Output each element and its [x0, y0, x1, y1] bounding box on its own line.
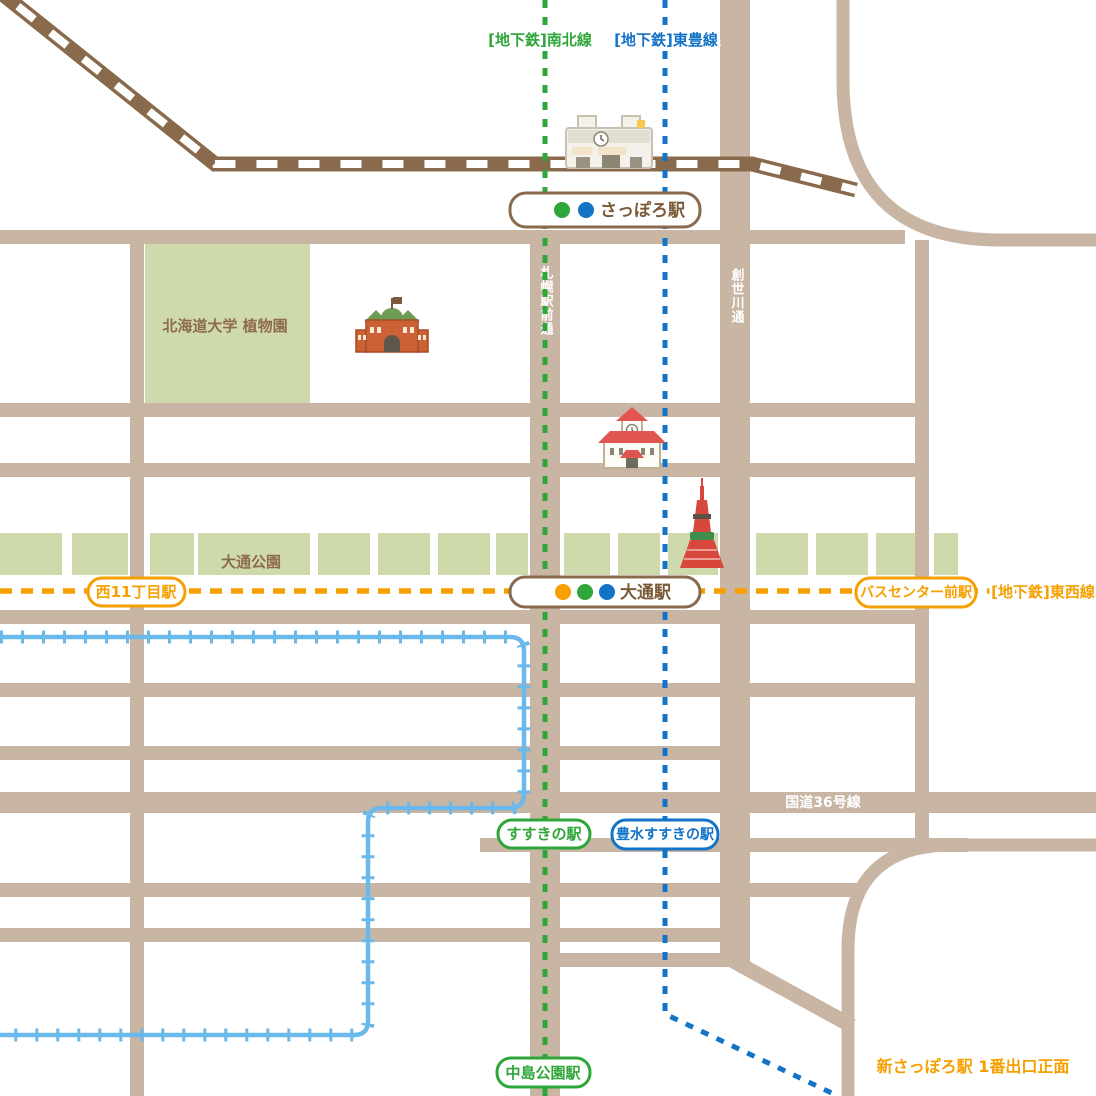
toho-dot-icon: [599, 584, 615, 600]
soseigawa-dori-road: [720, 0, 750, 962]
tv-tower-icon: [680, 478, 724, 568]
namboku-dot-icon: [577, 584, 593, 600]
svg-text:中島公園駅: 中島公園駅: [505, 1064, 581, 1082]
map-canvas: 札幌駅前通 創世川通 国道36号線 [地下鉄]南北線 [地下鉄]東豊線 [地下鉄…: [0, 0, 1096, 1096]
odori-park-label: 大通公園: [221, 553, 281, 571]
sapporo-route-map: 札幌駅前通 創世川通 国道36号線 [地下鉄]南北線 [地下鉄]東豊線 [地下鉄…: [0, 0, 1096, 1096]
svg-text:大通駅: 大通駅: [620, 582, 672, 603]
station-sapporo: さっぽろ駅: [510, 193, 700, 227]
svg-text:すすきの駅: すすきの駅: [506, 825, 582, 843]
namboku-dot-icon: [554, 202, 570, 218]
sapporo-station-building-icon: [566, 116, 652, 168]
red-brick-building-icon: [356, 297, 428, 352]
station-bus-center-mae: バスセンター前駅: [856, 578, 976, 607]
svg-text:西11丁目駅: 西11丁目駅: [96, 583, 178, 601]
street-label-route36: 国道36号線: [785, 794, 860, 811]
botanical-garden-label: 北海道大学 植物園: [162, 317, 287, 335]
street-label-soseigawa-dori: 創世川通: [729, 267, 746, 324]
svg-text:豊水すすきの駅: 豊水すすきの駅: [616, 826, 715, 843]
station-susukino: すすきの駅: [498, 820, 590, 848]
tozai-line-label: [地下鉄]東西線: [991, 583, 1095, 601]
shin-sapporo-note: 新さっぽろ駅 1番出口正面: [877, 1057, 1070, 1076]
station-nakajima-koen: 中島公園駅: [497, 1058, 590, 1087]
tozai-dot-icon: [555, 584, 571, 600]
station-odori: 大通駅: [510, 577, 700, 607]
station-hosui-susukino: 豊水すすきの駅: [612, 820, 718, 849]
toho-line-label: [地下鉄]東豊線: [614, 31, 718, 49]
namboku-line-label: [地下鉄]南北線: [488, 31, 592, 49]
svg-text:さっぽろ駅: さっぽろ駅: [600, 200, 686, 221]
toho-dot-icon: [578, 202, 594, 218]
station-nishi11chome: 西11丁目駅: [88, 578, 185, 606]
svg-text:バスセンター前駅: バスセンター前駅: [860, 584, 973, 601]
